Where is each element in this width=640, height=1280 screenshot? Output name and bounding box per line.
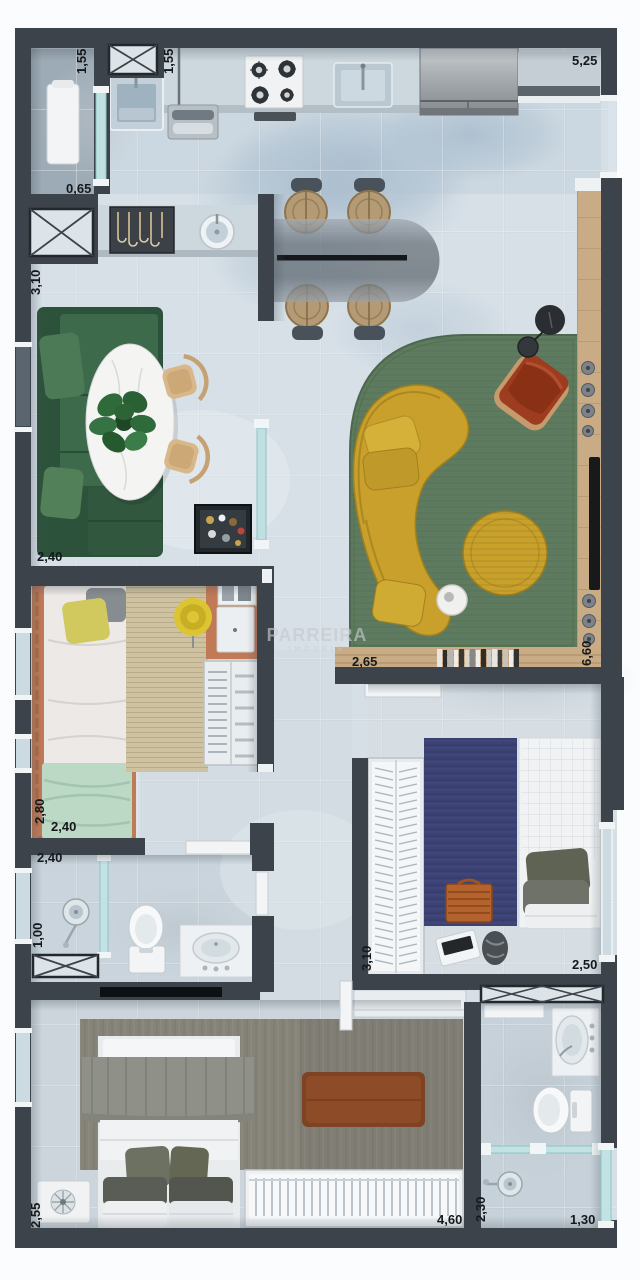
svg-text:2,55: 2,55	[28, 1203, 43, 1228]
svg-text:2,40: 2,40	[37, 850, 62, 865]
svg-text:4,60: 4,60	[437, 1212, 462, 1227]
svg-text:2,80: 2,80	[32, 799, 47, 824]
svg-text:1,30: 1,30	[570, 1212, 595, 1227]
svg-text:1,55: 1,55	[161, 49, 176, 74]
svg-text:6,60: 6,60	[579, 641, 594, 666]
svg-text:2,40: 2,40	[51, 819, 76, 834]
svg-text:2,30: 2,30	[473, 1197, 488, 1222]
svg-text:2,65: 2,65	[352, 654, 377, 669]
svg-text:0,65: 0,65	[66, 181, 91, 196]
svg-text:2,50: 2,50	[572, 957, 597, 972]
svg-text:3,10: 3,10	[359, 946, 374, 971]
svg-text:1,55: 1,55	[74, 49, 89, 74]
svg-text:IMÓVEIS: IMÓVEIS	[288, 644, 345, 653]
svg-text:PARREIRA: PARREIRA	[267, 625, 368, 645]
svg-text:1,00: 1,00	[30, 923, 45, 948]
svg-text:5,25: 5,25	[572, 53, 597, 68]
svg-text:2,40: 2,40	[37, 549, 62, 564]
svg-text:3,10: 3,10	[28, 270, 43, 295]
